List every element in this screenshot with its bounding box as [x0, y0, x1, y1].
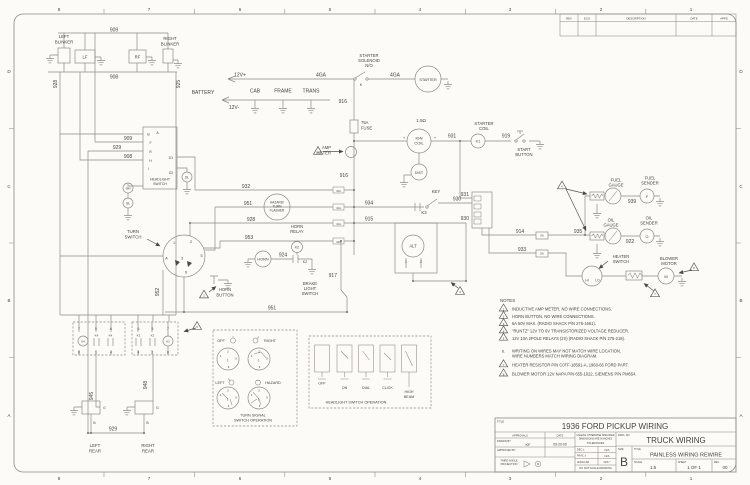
no-scale-label: DO NOT SCALE DRAWING	[579, 466, 611, 470]
schematic-label: ALT	[409, 244, 417, 249]
notes-list: 1INDUCTIVE AMP METER, NO WIRE CONNECTION…	[499, 304, 636, 377]
dwg-no-value: TRUCK WIRING	[646, 436, 706, 445]
schematic-label: SWITCH	[613, 259, 630, 264]
schematic-label: 928	[53, 80, 59, 89]
schematic-label: ON	[342, 386, 348, 390]
schematic-label: LO	[595, 279, 600, 283]
schematic-label: A	[165, 257, 168, 261]
schematic-label: 1	[690, 476, 693, 481]
schematic-label: 3	[227, 359, 229, 363]
schematic-label: 8	[58, 476, 61, 481]
schematic-label: BUTTON	[515, 152, 532, 157]
schematic-label: 75A	[361, 120, 369, 125]
scale-value: 1:5	[650, 465, 657, 470]
schematic-label: D	[7, 69, 11, 74]
schematic-label: DIAL	[362, 386, 370, 390]
dec-label: DEC ±	[577, 449, 585, 452]
schematic-label: 5	[152, 327, 154, 331]
schematic-label: 5	[95, 327, 97, 331]
right-blinker-lamp	[163, 49, 173, 63]
schematic-label: RIGHT	[264, 339, 276, 343]
brake-light-switch	[341, 290, 347, 299]
schematic-label: C	[7, 184, 11, 189]
schematic-label: N/O	[365, 63, 373, 68]
schematic-label: 1	[405, 260, 407, 264]
schematic-label: 951	[244, 201, 253, 207]
schematic-label: ECO	[584, 17, 591, 21]
schematic-label: STARTER	[419, 78, 437, 82]
schematic-label: RIGHT	[163, 36, 177, 41]
schematic-label: HI	[585, 279, 588, 283]
schematic-label: K	[360, 83, 363, 87]
schematic-label: K2	[303, 260, 307, 264]
schematic-label: B	[739, 298, 742, 303]
schematic-label: K3	[166, 339, 170, 343]
wiring-diagram: TITLE 1936 FORD PICKUP WIRING APPROVALS …	[0, 0, 750, 485]
note-text: 12V 10A 2POLE RELAYS (2X) (RADIO SHACK P…	[512, 336, 625, 341]
schematic-label: LEFT	[90, 443, 101, 448]
schematic-label: SENDER	[640, 221, 657, 226]
schematic-label: CAB	[250, 89, 261, 95]
schematic-label: 1	[251, 354, 253, 358]
desc-label: TITLE	[634, 448, 641, 451]
frac-value: N/A	[604, 454, 609, 458]
schematic-label: 10A	[336, 240, 341, 244]
schematic-label: H	[149, 159, 152, 163]
schematic-label: K3	[421, 210, 427, 215]
schematic-label: 10A	[336, 189, 341, 193]
schematic-label: NOTES	[500, 298, 515, 303]
bulkhead-connector	[472, 192, 492, 228]
schematic-label: 6	[138, 327, 140, 331]
tolerances-label: TOLERANCES	[587, 441, 605, 445]
schematic-label: 929	[109, 427, 118, 433]
schematic-label: 5	[200, 254, 202, 258]
schematic-label: M	[664, 274, 667, 279]
schematic-label: 930	[461, 216, 470, 222]
schematic-label: 1	[95, 351, 97, 355]
schematic-label: 948	[143, 381, 149, 390]
schematic-label: B	[147, 133, 150, 137]
schematic-label: GAUGE	[608, 183, 623, 188]
schematic-label: LF	[82, 55, 87, 60]
schematic-label: OFF	[318, 382, 326, 386]
schematic-label: 5A	[540, 234, 544, 238]
schematic-label: 2	[258, 389, 260, 393]
schematic-label: 5	[329, 7, 332, 12]
sheet-value: 1 OF 1	[687, 465, 701, 470]
schematic-label: A	[7, 413, 10, 418]
schematic-label: AMP	[322, 145, 331, 150]
schematic-label: 1	[220, 354, 222, 358]
schematic-label: HAZARD	[265, 381, 281, 385]
schematic-label: 10A	[336, 222, 341, 226]
left-rear-lamp	[82, 401, 100, 414]
rev-label: REV	[714, 461, 719, 464]
schematic-label: 5	[266, 357, 268, 361]
drawn-by-label: DRAWN BY	[497, 439, 511, 443]
schematic-label: 6	[185, 271, 187, 275]
schematic-label: 953	[245, 235, 254, 241]
schematic-label: HORN	[257, 258, 268, 262]
schematic-label: +	[434, 135, 437, 140]
schematic-label: 2	[420, 260, 422, 264]
sheet-label: SHEET	[678, 461, 687, 464]
schematic-label: FLASHER	[270, 209, 285, 213]
schematic-label: 3	[181, 257, 183, 261]
schematic-label: 5A	[540, 252, 544, 256]
schematic-label: 2	[258, 350, 260, 354]
schematic-label: 931	[448, 134, 457, 140]
schematic-label: 8	[167, 351, 169, 355]
schematic-label: 935	[574, 229, 583, 235]
schematic-label: G	[156, 406, 159, 410]
schematic-label: 3	[459, 290, 461, 294]
schematic-label: A	[156, 131, 159, 135]
schematic-label: 4	[138, 351, 140, 355]
schematic-label: 1	[152, 351, 154, 355]
schematic-label: 4GA	[390, 73, 401, 79]
dec-value: N/A	[604, 448, 609, 452]
schematic-label: 6	[239, 7, 242, 12]
scale-label: SCALE	[634, 461, 643, 464]
schematic-label: 915	[365, 217, 374, 223]
schematic-label: OFF	[217, 339, 225, 343]
note-text: 6A 50V MAX. (RADIO SHACK P/N 276-1661).	[512, 321, 596, 326]
schematic-label: BLINKER	[55, 40, 73, 45]
note-text: INDUCTIVE AMP METER, NO WIRE CONNECTIONS…	[512, 307, 612, 312]
rev-value: 00	[722, 465, 728, 470]
schematic-label: 924	[279, 253, 288, 259]
schematic-label: I	[148, 167, 149, 171]
schematic-label: 5	[196, 325, 198, 329]
schematic-label: B	[7, 298, 10, 303]
angular-value: N/A °	[604, 460, 612, 464]
schematic-label: DESCRIPTION	[626, 17, 645, 21]
note-number: 6.	[502, 348, 505, 353]
heater-switch	[582, 266, 602, 286]
schematic-label: 5	[235, 357, 237, 361]
schematic-label: APPD	[720, 17, 728, 21]
schematic-label: 1	[251, 393, 253, 397]
schematic-label: R	[149, 150, 152, 154]
schematic-label: GH	[126, 186, 131, 190]
schematic-label: 6	[239, 476, 242, 481]
schematic-label: K2	[295, 246, 299, 250]
schematic-label: 925	[176, 80, 182, 89]
schematic-label: 1.5Ω	[416, 118, 426, 123]
schematic-label: SWITCH	[153, 182, 167, 186]
schematic-label: 8	[58, 7, 61, 12]
schematic-label: K4	[109, 334, 113, 338]
schematic-label: F	[149, 141, 151, 145]
schematic-label: 1	[220, 393, 222, 397]
schematic-label: 6	[110, 327, 112, 331]
size-value: B	[620, 455, 628, 469]
schematic-label: 3	[227, 398, 229, 402]
horn-button	[210, 276, 228, 284]
schematic-label: HORN	[219, 287, 231, 292]
schematic-label: 928	[247, 217, 256, 223]
schematic-label: HEADLIGHT	[150, 178, 171, 182]
k2-contact	[293, 255, 298, 263]
schematic-label: 908	[110, 75, 119, 81]
schematic-label: 2	[227, 389, 229, 393]
amp-meter	[346, 147, 357, 158]
schematic-label: LEFT	[59, 34, 70, 39]
schematic-label: SWITCH	[302, 291, 319, 296]
drawn-by-value: KF	[525, 442, 531, 447]
schematic-labels: 8765432187654321DCBADCBAREVECODESCRIPTIO…	[7, 7, 743, 481]
schematic-label: 909	[124, 136, 133, 142]
schematic-label: 945	[89, 392, 95, 401]
schematic-label: HIGH	[405, 390, 414, 394]
schematic-label: 4	[419, 476, 422, 481]
schematic-label: DIST	[415, 171, 424, 175]
schematic-label: 8	[78, 351, 80, 355]
schematic-label: 952	[155, 288, 161, 297]
note-text: WIRE NUMBERS MATCH WIRING DIAGRAM.	[512, 353, 597, 358]
note-text: HORN BUTTON, NO WIRE CONNECTIONS.	[512, 314, 595, 319]
schematic-label: O	[646, 235, 649, 239]
runtz-reducer-oil	[590, 232, 604, 240]
schematic-label: G	[103, 406, 106, 410]
approvals-label: APPROVALS	[512, 434, 528, 438]
schematic-label: D2	[169, 171, 173, 175]
schematic-label: A	[739, 413, 742, 418]
schematic-label: 10A	[336, 206, 341, 210]
schematic-label: TURN	[127, 229, 139, 234]
schematic-label: CLICK	[382, 386, 393, 390]
right-rear-lamp	[135, 401, 153, 414]
schematic-label: 917	[329, 273, 338, 279]
schematic-label: COIL	[414, 141, 424, 146]
schematic-label: COIL	[479, 126, 489, 131]
schematic-label: K4	[81, 339, 85, 343]
schematic-label: BEAM	[404, 395, 414, 399]
note-text: BLOWER MOTOR 12V NAPA P/N 655-1022, SIEM…	[512, 372, 637, 377]
schematic-label: D	[739, 69, 743, 74]
dwg-no-label: DWG. NO.	[618, 433, 631, 437]
schematic-label: BLINKER	[161, 42, 179, 47]
schematic-label: 951	[268, 306, 277, 312]
schematic-label: 5	[329, 476, 332, 481]
spec-line-2: DIMENSIONS ARE IN INCHES	[579, 438, 613, 441]
schematic-label: 929	[113, 145, 122, 151]
note-text: "RUNTZ" 12V TO 6V TRANSISTORIZED VOLTAGE…	[512, 329, 629, 334]
approved-by-label: APPROVED BY	[497, 448, 516, 452]
sheet-title: 1936 FORD PICKUP WIRING	[562, 422, 669, 431]
schematic-label: 4	[110, 351, 112, 355]
schematic-label: 7	[167, 327, 169, 331]
schematic-label: 939	[628, 199, 637, 205]
turn-signal-operation-box	[213, 330, 297, 426]
schematic-label: 4	[419, 7, 422, 12]
schematic-label: HEADLIGHT SWITCH OPERATION	[326, 401, 387, 405]
schematic-label: REV	[566, 17, 572, 21]
schematic-label: REAR	[89, 449, 101, 454]
schematic-label: 7	[654, 292, 656, 296]
schematic-label: K3	[137, 334, 141, 338]
title-label: TITLE	[497, 420, 504, 424]
schematic-label: TRANS	[303, 89, 321, 95]
schematic-label: KEY	[432, 189, 441, 194]
schematic-label: 933	[518, 247, 527, 253]
desc-value: PAINLESS WIRING REWIRE	[650, 453, 722, 459]
angular-label: ANGULAR	[577, 461, 589, 464]
schematic-label: RIGHT	[141, 443, 155, 448]
schematic-label: B	[146, 421, 149, 425]
schematic-label: 2	[600, 476, 603, 481]
schematic-label: BATTERY	[192, 90, 215, 96]
key-switch	[427, 199, 437, 206]
schematic-label: FRAME	[274, 89, 292, 95]
schematic-label: C	[739, 184, 743, 189]
schematic-label: B	[93, 421, 96, 425]
projection-label-1: THIRD ANGLE	[500, 459, 518, 463]
schematic-label: 7	[148, 476, 151, 481]
schematic-label: REAR	[142, 449, 154, 454]
schematic-label: 2	[190, 240, 192, 244]
schematic-label: 908	[124, 154, 133, 160]
schematic-label: RELAY	[290, 229, 304, 234]
schematic-label: 914	[516, 229, 525, 235]
schematic-label: SWITCH OPERATION	[234, 419, 272, 423]
title-block: TITLE 1936 FORD PICKUP WIRING APPROVALS …	[495, 418, 736, 472]
schematic-label: K1	[476, 140, 481, 144]
schematic-label: 12V+	[234, 73, 246, 79]
size-label: SIZE	[618, 448, 624, 451]
schematic-label: 7	[148, 7, 151, 12]
drawing-sheet: TITLE 1936 FORD PICKUP WIRING APPROVALS …	[0, 0, 750, 485]
schematic-label: 5	[235, 396, 237, 400]
schematic-label: 2	[227, 350, 229, 354]
schematic-label: 6	[259, 365, 261, 369]
schematic-label: FUSE	[361, 126, 372, 131]
schematic-label: MOTOR	[661, 261, 677, 266]
schematic-label: 909	[110, 28, 119, 34]
schematic-label: K3	[151, 334, 155, 338]
schematic-label: GL	[126, 201, 130, 205]
schematic-label: 2	[203, 293, 205, 297]
schematic-label: LEFT	[215, 381, 225, 385]
schematic-label: 4	[561, 184, 563, 188]
schematic-label: 3	[509, 476, 512, 481]
schematic-label: D1	[169, 156, 173, 160]
schematic-label: 934	[365, 201, 374, 207]
schematic-label: 2	[600, 7, 603, 12]
schematic-label: 6	[228, 365, 230, 369]
schematic-label: 916	[339, 99, 348, 105]
schematic-label: F	[646, 195, 649, 199]
schematic-label: 6	[259, 404, 261, 408]
schematic-label: 932	[242, 184, 251, 190]
schematic-label: 7	[78, 327, 80, 331]
schematic-label: 4GA	[316, 73, 327, 79]
schematic-label: 931	[461, 192, 470, 198]
schematic-label: SWITCH	[125, 235, 142, 240]
schematic-label: 922	[626, 239, 635, 245]
schematic-label: 12V-	[229, 105, 240, 111]
schematic-label: 1	[690, 7, 693, 12]
schematic-label: 6	[228, 404, 230, 408]
schematic-label: 3	[509, 7, 512, 12]
schematic-label: DATE	[690, 17, 697, 21]
runtz-reducer-fuel	[590, 192, 604, 200]
schematic-label: GAUGE	[603, 223, 618, 228]
schematic-label: 919	[502, 134, 511, 140]
start-button	[516, 131, 524, 140]
drawn-date-value: 09-20-09	[553, 443, 567, 447]
schematic-label: DL	[185, 175, 189, 179]
schematic-label: SENDER	[641, 181, 658, 186]
schematic-label: RF	[135, 55, 141, 60]
schematic-label: TURN SIGNAL	[240, 414, 266, 418]
left-blinker-lamp	[58, 48, 70, 63]
projection-label-2: PROJECTION	[501, 462, 518, 466]
schematic-label: 1	[173, 241, 175, 245]
date-label: DATE	[557, 434, 564, 438]
75a-fuse	[350, 120, 358, 133]
frac-label: FRAC ±	[577, 455, 587, 458]
schematic-label: K4	[95, 334, 99, 338]
schematic-label: 5	[266, 396, 268, 400]
schematic-label: +	[403, 135, 406, 140]
schematic-label: 8	[693, 266, 695, 270]
schematic-label: 916	[340, 173, 349, 179]
schematic-label: 3	[258, 359, 260, 363]
note-text: HEATER RESISTOR P/N C0TF-18591-A, 1960-6…	[512, 362, 629, 367]
schematic-label: BUTTON	[216, 293, 233, 298]
